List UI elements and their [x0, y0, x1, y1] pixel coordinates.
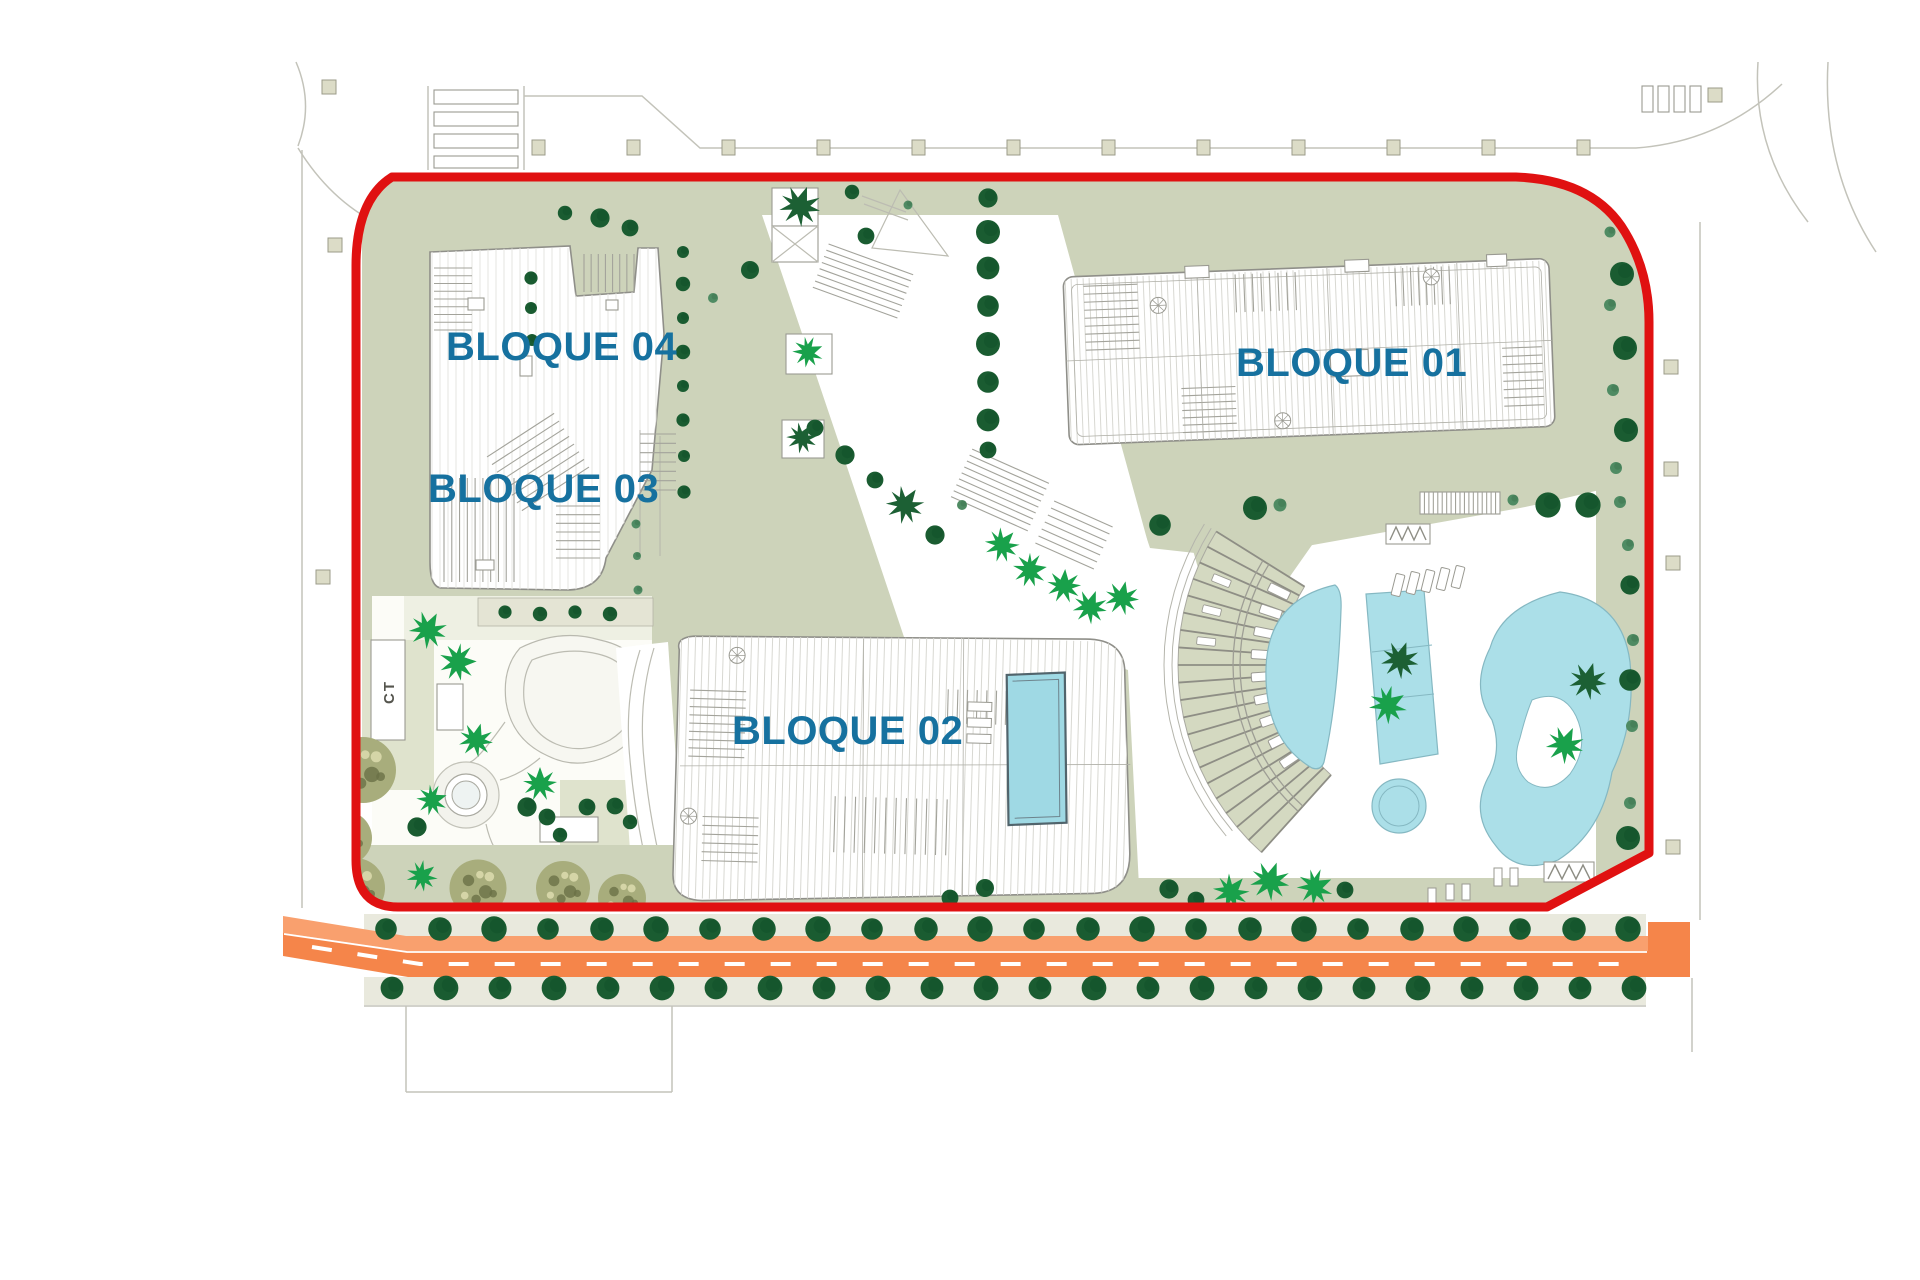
- bloque-04-label: BLOQUE 04: [446, 325, 677, 369]
- site-plan-page: CT: [0, 0, 1920, 1280]
- bloque-01-label: BLOQUE 01: [1236, 341, 1467, 385]
- crosswalk-top-left: [428, 86, 524, 170]
- garden-shed: [437, 684, 463, 730]
- rooftop-pool: [1003, 671, 1071, 827]
- site-interior: CT: [287, 180, 1649, 922]
- fountain-inner-ring: [452, 781, 480, 809]
- bloque-02-label: BLOQUE 02: [732, 709, 963, 753]
- round-pool: [1372, 779, 1426, 833]
- bloque-03-label: BLOQUE 03: [428, 467, 659, 511]
- site-plan: CT: [0, 0, 1920, 1280]
- bloque-02-building: [672, 628, 1136, 913]
- crosswalk-top-right: [1642, 86, 1701, 112]
- ct-label: CT: [381, 680, 398, 704]
- left-garden: CT: [362, 596, 653, 868]
